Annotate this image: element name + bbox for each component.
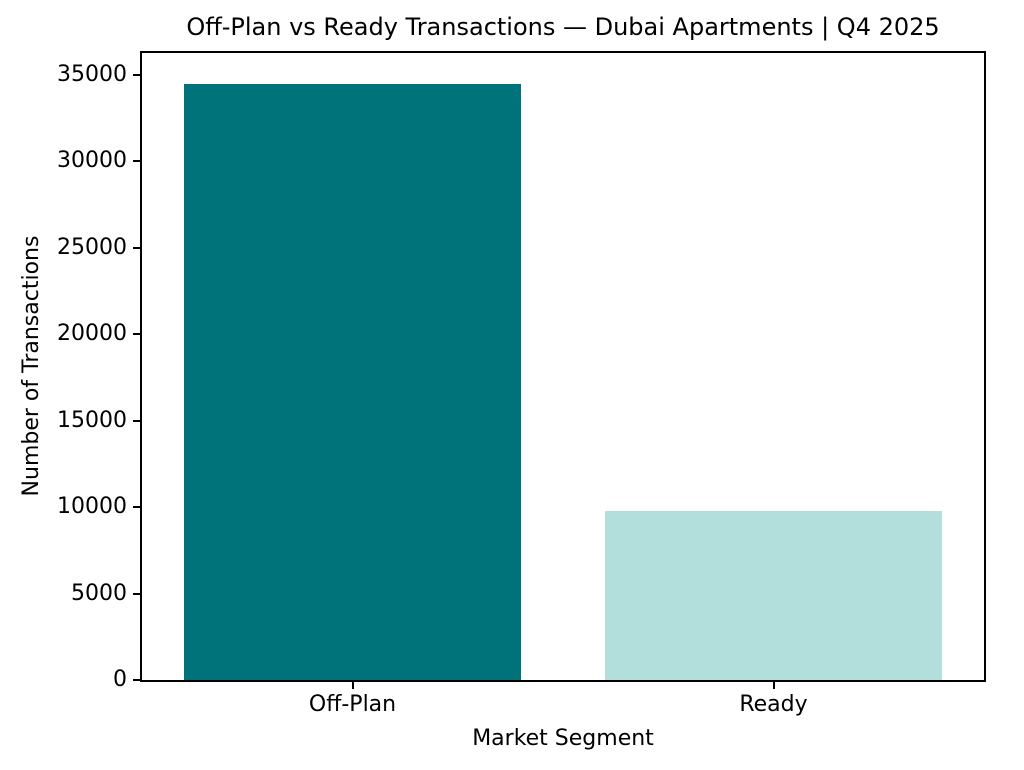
y-tick-label: 10000 <box>0 496 127 518</box>
y-tick-mark <box>133 333 142 335</box>
y-tick-label: 5000 <box>0 583 127 605</box>
y-tick-label: 20000 <box>0 323 127 345</box>
y-tick-mark <box>133 160 142 162</box>
y-tick-mark <box>133 420 142 422</box>
y-tick-mark <box>133 247 142 249</box>
bar-off-plan <box>184 84 521 680</box>
y-tick-label: 0 <box>0 669 127 691</box>
y-tick-mark <box>133 593 142 595</box>
x-axis-label: Market Segment <box>142 728 984 750</box>
x-tick-label-off-plan: Off-Plan <box>309 694 396 716</box>
x-tick-label-ready: Ready <box>739 694 807 716</box>
bar-ready <box>605 511 942 680</box>
y-tick-label: 35000 <box>0 64 127 86</box>
y-tick-label: 15000 <box>0 410 127 432</box>
bar-chart-figure: Off-Plan vs Ready Transactions — Dubai A… <box>0 0 1024 770</box>
x-tick-mark <box>773 680 775 689</box>
y-tick-label: 25000 <box>0 237 127 259</box>
chart-title: Off-Plan vs Ready Transactions — Dubai A… <box>142 13 984 42</box>
x-tick-mark <box>352 680 354 689</box>
y-tick-mark <box>133 506 142 508</box>
y-axis-label: Number of Transactions <box>21 236 43 497</box>
y-tick-mark <box>133 679 142 681</box>
plot-area <box>142 53 984 680</box>
y-tick-mark <box>133 74 142 76</box>
y-tick-label: 30000 <box>0 150 127 172</box>
